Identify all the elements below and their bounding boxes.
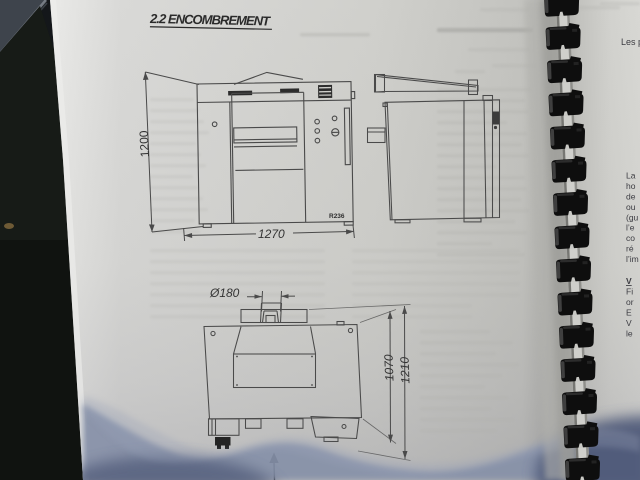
svg-text:(gu: (gu bbox=[626, 212, 639, 222]
svg-text:de: de bbox=[626, 191, 636, 201]
svg-text:1070: 1070 bbox=[382, 354, 397, 381]
svg-text:l’e: l’e bbox=[626, 223, 635, 233]
svg-text:Ø180: Ø180 bbox=[209, 286, 240, 300]
svg-text:1200: 1200 bbox=[137, 130, 152, 158]
svg-text:ré: ré bbox=[626, 244, 634, 254]
svg-text:1270: 1270 bbox=[258, 227, 285, 241]
svg-text:E: E bbox=[626, 308, 632, 318]
svg-text:La: La bbox=[626, 171, 636, 181]
svg-text:V: V bbox=[626, 318, 632, 328]
svg-text:2.2 ENCOMBREMENT: 2.2 ENCOMBREMENT bbox=[149, 11, 271, 29]
svg-text:1210: 1210 bbox=[398, 356, 413, 383]
svg-text:l’im: l’im bbox=[626, 254, 639, 264]
svg-text:V: V bbox=[626, 276, 632, 286]
svg-text:ou: ou bbox=[626, 202, 636, 212]
svg-text:co: co bbox=[626, 233, 635, 243]
svg-text:ho: ho bbox=[626, 181, 636, 191]
svg-text:R236: R236 bbox=[329, 213, 345, 220]
svg-text:Les p: Les p bbox=[621, 37, 640, 47]
svg-text:or: or bbox=[626, 297, 634, 307]
svg-text:le: le bbox=[626, 329, 633, 339]
svg-text:Fi: Fi bbox=[626, 287, 633, 297]
